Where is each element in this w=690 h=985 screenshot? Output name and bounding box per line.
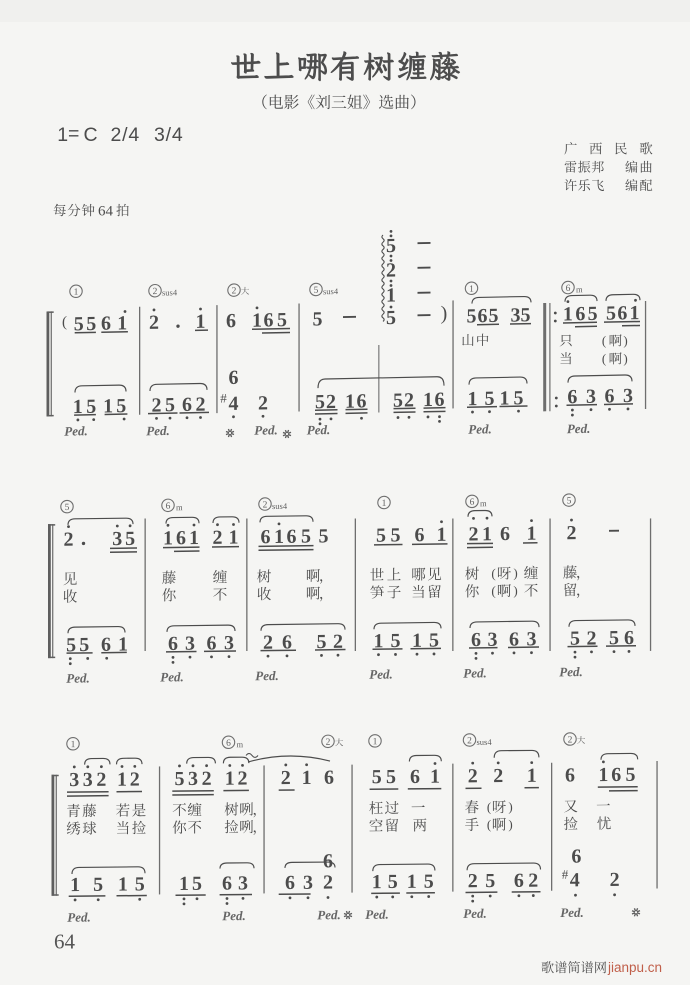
- svg-text:5: 5: [567, 496, 572, 506]
- svg-text:): ): [513, 583, 517, 598]
- svg-text:5: 5: [314, 286, 319, 296]
- svg-text:Ped.: Ped.: [463, 906, 486, 921]
- svg-text:2: 2: [528, 870, 538, 892]
- svg-text:6: 6: [410, 766, 420, 788]
- svg-text:1: 1: [57, 124, 68, 146]
- svg-text:1: 1: [372, 871, 382, 893]
- svg-text:6: 6: [323, 850, 333, 872]
- svg-text:Ped.: Ped.: [254, 422, 277, 437]
- svg-text:Ped.: Ped.: [222, 908, 245, 923]
- svg-text:64: 64: [98, 203, 114, 219]
- svg-text:): ): [508, 799, 512, 814]
- svg-text:6: 6: [287, 526, 297, 548]
- svg-text:m: m: [576, 284, 583, 294]
- svg-text:2: 2: [202, 768, 212, 790]
- svg-text:(: (: [487, 817, 491, 832]
- svg-text:6: 6: [514, 870, 524, 892]
- svg-text:2: 2: [323, 872, 333, 894]
- svg-text:3: 3: [112, 528, 122, 550]
- svg-text:jianpu.cn: jianpu.cn: [607, 960, 662, 975]
- svg-text:1: 1: [117, 769, 127, 791]
- svg-text:6: 6: [565, 764, 575, 786]
- svg-text:6: 6: [611, 764, 621, 786]
- svg-text:3: 3: [238, 872, 248, 894]
- svg-text:1: 1: [598, 764, 608, 786]
- svg-text:5: 5: [135, 873, 145, 895]
- svg-text:6: 6: [415, 524, 425, 546]
- svg-text:): ): [441, 302, 448, 324]
- svg-text:): ): [623, 333, 627, 348]
- svg-text:1: 1: [382, 499, 387, 509]
- svg-text:5: 5: [626, 764, 636, 786]
- svg-text:Ped.: Ped.: [317, 907, 340, 922]
- svg-text:1: 1: [469, 285, 474, 295]
- svg-text:1: 1: [527, 523, 537, 545]
- svg-text:2: 2: [568, 735, 573, 745]
- svg-text:Ped.: Ped.: [307, 422, 330, 437]
- svg-text:5: 5: [65, 503, 70, 513]
- svg-text:6: 6: [324, 767, 334, 789]
- svg-text:1: 1: [229, 526, 239, 548]
- svg-text:5: 5: [386, 235, 396, 257]
- svg-text:6: 6: [229, 367, 239, 389]
- svg-text:1: 1: [407, 871, 417, 893]
- svg-text:sus4: sus4: [162, 287, 178, 297]
- svg-text:6: 6: [226, 310, 236, 332]
- svg-text:1: 1: [482, 523, 492, 545]
- svg-text:sus4: sus4: [477, 737, 493, 747]
- svg-text:m: m: [176, 502, 183, 512]
- svg-text:#: #: [562, 867, 569, 882]
- svg-text:2: 2: [232, 286, 237, 296]
- svg-text:1: 1: [70, 874, 80, 896]
- svg-text:2: 2: [281, 767, 291, 789]
- svg-text:2: 2: [467, 736, 472, 746]
- svg-text:3: 3: [188, 768, 198, 790]
- svg-text:1: 1: [437, 524, 447, 546]
- svg-text:5: 5: [424, 871, 434, 893]
- svg-text:sus4: sus4: [323, 286, 339, 296]
- svg-text:1: 1: [302, 767, 312, 789]
- svg-text:1: 1: [118, 874, 128, 896]
- svg-text:(: (: [487, 799, 491, 814]
- svg-text:2: 2: [469, 523, 479, 545]
- svg-text:2: 2: [326, 738, 331, 748]
- svg-text:2: 2: [96, 769, 106, 791]
- svg-text:1: 1: [163, 527, 173, 549]
- svg-text:Ped.: Ped.: [160, 669, 183, 684]
- svg-text:): ): [513, 565, 517, 580]
- svg-text:3: 3: [83, 769, 93, 791]
- svg-text:2/4: 2/4: [111, 124, 141, 146]
- svg-text:Ped.: Ped.: [146, 423, 169, 438]
- svg-text:Ped.: Ped.: [567, 421, 590, 436]
- svg-text:2: 2: [258, 392, 268, 414]
- svg-text:5: 5: [313, 308, 323, 330]
- svg-text:5: 5: [125, 528, 135, 550]
- svg-text:#: #: [220, 390, 227, 405]
- svg-text:1: 1: [74, 288, 79, 298]
- svg-text:2: 2: [468, 765, 478, 787]
- svg-text:Ped.: Ped.: [468, 421, 491, 436]
- svg-text:6: 6: [261, 526, 271, 548]
- svg-text:5: 5: [386, 307, 396, 329]
- svg-text:5: 5: [386, 766, 396, 788]
- svg-text:(: (: [491, 566, 495, 581]
- svg-text:Ped.: Ped.: [66, 670, 89, 685]
- svg-text:5: 5: [93, 874, 103, 896]
- svg-text:2: 2: [263, 500, 268, 510]
- svg-text:5: 5: [192, 873, 202, 895]
- svg-text:1: 1: [71, 740, 76, 750]
- svg-text:5: 5: [376, 525, 386, 547]
- svg-text:m: m: [480, 498, 487, 508]
- svg-text:1: 1: [225, 768, 235, 790]
- svg-text:5: 5: [467, 305, 477, 327]
- svg-text:2: 2: [213, 527, 223, 549]
- svg-text:=: =: [68, 123, 79, 145]
- svg-text:Ped.: Ped.: [64, 423, 87, 438]
- svg-text:(: (: [602, 333, 606, 348]
- svg-text:1: 1: [189, 527, 199, 549]
- svg-text:2: 2: [493, 765, 503, 787]
- svg-text:5: 5: [388, 871, 398, 893]
- svg-text:2: 2: [238, 767, 248, 789]
- svg-text:6: 6: [222, 873, 232, 895]
- svg-text:4: 4: [570, 869, 580, 891]
- svg-text:5: 5: [301, 526, 311, 548]
- svg-text:2: 2: [130, 769, 140, 791]
- svg-text:6: 6: [176, 527, 186, 549]
- svg-text:Ped.: Ped.: [559, 664, 582, 679]
- svg-text:6: 6: [226, 739, 231, 749]
- svg-text:(: (: [491, 583, 495, 598]
- svg-text:6: 6: [285, 872, 295, 894]
- svg-text:Ped.: Ped.: [463, 665, 486, 680]
- svg-text:): ): [508, 817, 512, 832]
- svg-text:C: C: [84, 124, 98, 146]
- svg-text:(: (: [602, 351, 606, 366]
- svg-text:2: 2: [610, 869, 620, 891]
- svg-text:5: 5: [175, 768, 185, 790]
- svg-text:Ped.: Ped.: [67, 909, 90, 924]
- svg-text:3: 3: [303, 872, 313, 894]
- svg-text:1: 1: [527, 765, 537, 787]
- svg-text:1: 1: [386, 284, 396, 306]
- svg-text:1: 1: [274, 526, 284, 548]
- svg-text:(: (: [62, 314, 67, 330]
- svg-text:3/4: 3/4: [154, 124, 184, 146]
- svg-text:1: 1: [373, 737, 378, 747]
- svg-text:2: 2: [153, 287, 158, 297]
- svg-text:2: 2: [149, 312, 159, 334]
- svg-text:1: 1: [179, 873, 189, 895]
- svg-text:Ped.: Ped.: [369, 666, 392, 681]
- svg-text:6: 6: [566, 284, 571, 294]
- svg-text:1: 1: [430, 766, 440, 788]
- svg-text:64: 64: [54, 930, 76, 954]
- svg-text:): ): [623, 351, 627, 366]
- svg-text:Ped.: Ped.: [365, 907, 388, 922]
- svg-text:Ped.: Ped.: [560, 905, 583, 920]
- svg-text:5: 5: [319, 525, 329, 547]
- svg-text:5: 5: [485, 870, 495, 892]
- svg-text:sus4: sus4: [272, 501, 288, 511]
- svg-text:4: 4: [229, 393, 239, 415]
- svg-text:6: 6: [500, 523, 510, 545]
- svg-text:6: 6: [166, 502, 171, 512]
- svg-text:6: 6: [470, 498, 475, 508]
- svg-text:2: 2: [468, 870, 478, 892]
- svg-text:2: 2: [567, 522, 577, 544]
- svg-text:m: m: [237, 739, 244, 749]
- svg-text:2: 2: [64, 529, 74, 551]
- svg-text:2: 2: [386, 259, 396, 281]
- svg-text:3: 3: [69, 769, 79, 791]
- svg-text:Ped.: Ped.: [255, 668, 278, 683]
- svg-text:5: 5: [391, 524, 401, 546]
- svg-text:6: 6: [571, 846, 581, 868]
- svg-text:5: 5: [372, 766, 382, 788]
